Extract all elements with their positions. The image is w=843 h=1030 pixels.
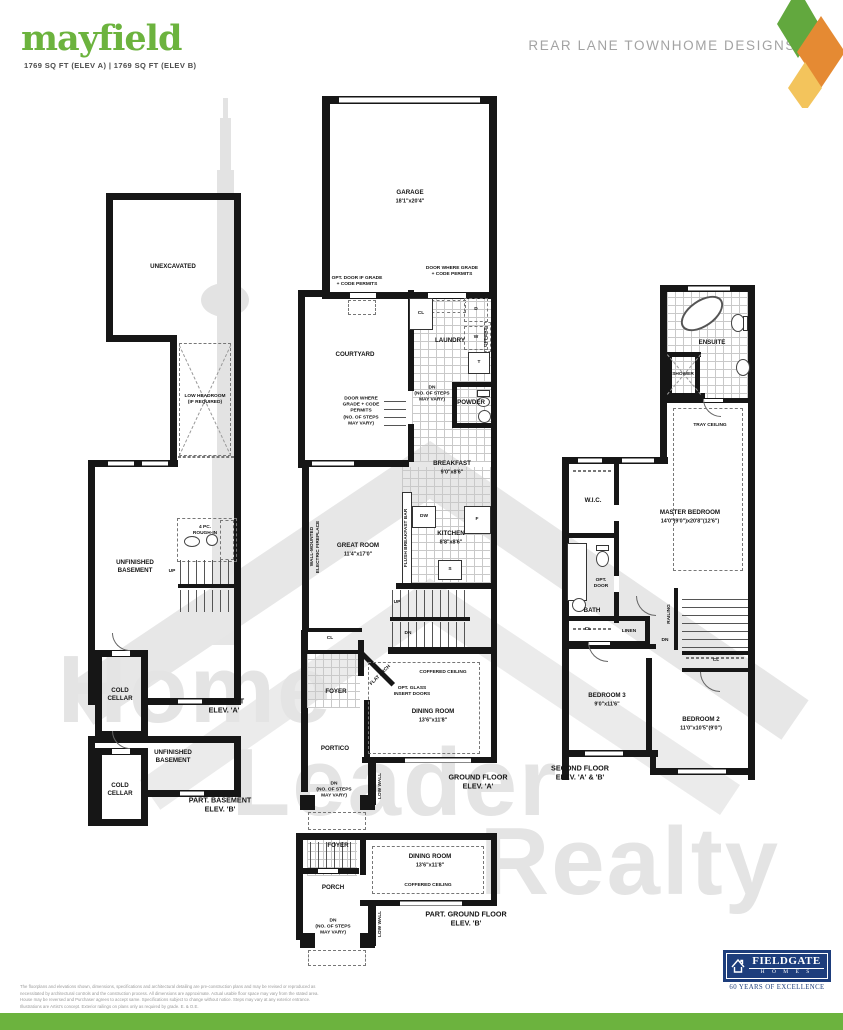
part-ground-dining-dim-label: 13'6"x11'8"	[416, 862, 444, 869]
ground-floor-elev-label: GROUND FLOOR ELEV. 'A'	[448, 773, 507, 792]
porch-dn-note: DN (NO. OF STEPS MAY VARY)	[315, 919, 350, 938]
wic-label: W.I.C.	[585, 497, 602, 505]
opt-glass-note: OPT. GLASS INSERT DOORS	[394, 686, 431, 698]
linen-label: LINEN	[622, 629, 636, 635]
laundry-tub-label: T	[478, 360, 481, 366]
laundry-label: LAUNDRY	[435, 337, 465, 345]
dn-steps-note: DN (NO. OF STEPS MAY VARY)	[414, 386, 449, 405]
great-room-dim-label: 11'4"x17'0"	[344, 551, 372, 558]
bottom-green-bar	[0, 1013, 843, 1030]
master-bedroom-label: MASTER BEDROOM	[660, 509, 720, 517]
kitchen-label: KITCHEN	[437, 530, 465, 538]
dining-room-dim-label: 13'6"x11'8"	[419, 717, 447, 724]
bedroom2-closet-label: CL	[713, 658, 719, 664]
basement-up-label: UP	[169, 569, 176, 575]
cold-cellar-label: COLD CELLAR	[107, 687, 132, 703]
floorplan-sheet: Home Leader Realty mayfield 1769 SQ FT (…	[0, 0, 843, 1030]
bath-label: BATH	[584, 607, 601, 615]
entry-door-note: DOOR WHERE GRADE + CODE PERMITS (NO. OF …	[343, 396, 380, 427]
door-grade-note: DOOR WHERE GRADE + CODE PERMITS	[426, 266, 478, 278]
fieldgate-tagline: 60 YEARS OF EXCELLENCE	[723, 984, 831, 991]
second-dn-label: DN	[662, 638, 669, 644]
opt-door-label: OPT. DOOR	[594, 578, 608, 590]
unexcavated-label: UNEXCAVATED	[150, 263, 196, 271]
fieldgate-homes-logo: FIELDGATE H O M E S 60 YEARS OF EXCELLEN…	[723, 950, 831, 991]
breakfast-dim-label: 9'0"x8'6"	[441, 469, 464, 476]
part-ground-coffered-label: COFFERED CEILING	[404, 883, 451, 889]
part-ground-low-wall-label: LOW WALL	[378, 911, 384, 937]
fieldgate-logo-inner: FIELDGATE H O M E S	[726, 953, 828, 979]
fireplace-note: WALL-MOUNTED ELECTRIC FIREPLACE	[310, 521, 322, 574]
part-ground-elev-label: PART. GROUND FLOOR ELEV. 'B'	[425, 910, 506, 929]
fridge-label: F	[476, 517, 479, 523]
shower-label: SHOWER	[672, 372, 694, 378]
bedroom3-label: BEDROOM 3	[588, 692, 625, 700]
rough-in-label: 4 PC. ROUGH-IN	[193, 525, 217, 537]
courtyard-label: COURTYARD	[336, 351, 375, 359]
bedroom2-label: BEDROOM 2	[682, 716, 719, 724]
bedroom2-dim-label: 11'0"x10'5"(9'0")	[680, 725, 722, 732]
great-room-label: GREAT ROOM	[337, 542, 379, 550]
part-basement-unfinished-label: UNFINISHED BASEMENT	[154, 749, 192, 765]
bedroom3-dim-label: 9'0"x11'6"	[594, 701, 619, 708]
dining-room-label: DINING ROOM	[412, 708, 455, 716]
portico-dn-note: DN (NO. OF STEPS MAY VARY)	[316, 782, 351, 801]
flat-arch-label: FLAT ARCH	[369, 664, 392, 687]
part-basement-elev-label: PART. BASEMENT ELEV. 'B'	[189, 796, 252, 815]
railing-label: RAILING	[667, 604, 673, 624]
part-basement-cold-cellar-label: COLD CELLAR	[107, 782, 132, 798]
basement-elev-label: BASEMENT ELEV. 'A'	[204, 697, 244, 716]
master-bedroom-dim-label: 14'0"(9'0")x20'8"(12'6")	[661, 518, 720, 525]
low-wall-label: LOW WALL	[378, 773, 384, 799]
breakfast-label: BREAKFAST	[433, 460, 471, 468]
ground-dn-label: DN	[405, 631, 412, 637]
dryer-label: D	[474, 307, 477, 313]
fieldgate-logo-text: FIELDGATE H O M E S	[749, 956, 824, 976]
coffered-ceiling-label: COFFERED CEILING	[419, 670, 466, 676]
fieldgate-homes-word: H O M E S	[761, 970, 813, 976]
garage-dim-label: 18'1"x20'4"	[396, 198, 425, 205]
second-floor-elev-label: SECOND FLOOR ELEV. 'A' & 'B'	[551, 764, 609, 783]
flush-bar-label: FLUSH BREAKFAST BAR	[404, 509, 410, 567]
washer-label: W	[474, 335, 479, 341]
fieldgate-logo-box: FIELDGATE H O M E S	[723, 950, 831, 982]
plan-label-layer: UNEXCAVATED LOW HEADROOM (IF REQUIRED) 4…	[0, 0, 843, 1030]
tray-ceiling-label: TRAY CEILING	[693, 423, 726, 429]
ensuite-label: ENSUITE	[699, 339, 726, 347]
legal-disclaimer: The floorplans and elevations shown, dim…	[20, 984, 328, 1011]
unfinished-basement-label: UNFINISHED BASEMENT	[116, 559, 154, 575]
foyer-closet-label: CL	[327, 636, 333, 642]
part-ground-foyer-label: FOYER	[327, 842, 348, 850]
ground-up-label: UP	[394, 600, 401, 606]
house-icon	[730, 958, 746, 974]
foyer-label: FOYER	[325, 688, 346, 696]
porch-label: PORCH	[322, 884, 344, 892]
fieldgate-brand: FIELDGATE	[752, 956, 820, 967]
uppers-label: UPPERS	[484, 327, 490, 347]
powder-label: POWDER	[457, 399, 485, 407]
sink-label: S	[448, 567, 451, 573]
garage-label: GARAGE	[396, 189, 423, 197]
closet-label: CL	[418, 311, 424, 317]
portico-label: PORTICO	[321, 745, 349, 753]
part-ground-dining-label: DINING ROOM	[409, 853, 452, 861]
low-headroom-label: LOW HEADROOM (IF REQUIRED)	[184, 394, 225, 406]
kitchen-dim-label: 8'8"x8'6"	[440, 539, 463, 546]
hall-closet-label: CL	[585, 627, 591, 633]
opt-door-note: OPT. DOOR IF GRADE + CODE PERMITS	[332, 276, 383, 288]
dishwasher-label: DW	[420, 514, 428, 520]
